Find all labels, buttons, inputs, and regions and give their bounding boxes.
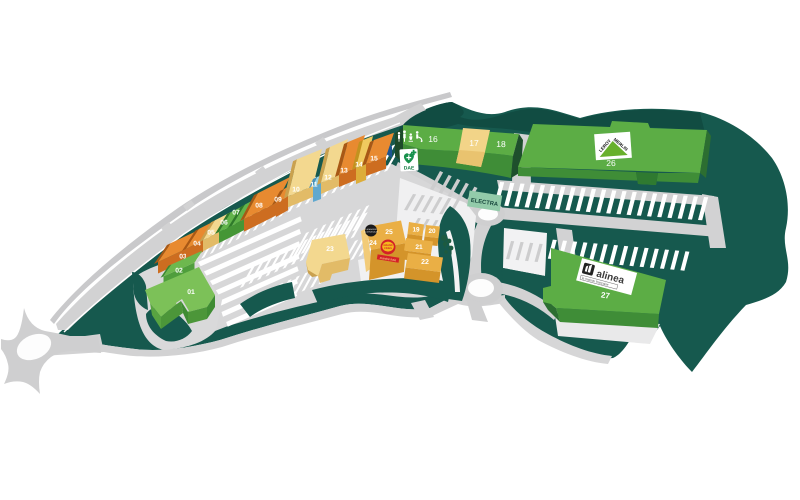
svg-text:du CHOCOLAT: du CHOCOLAT — [364, 231, 379, 234]
svg-text:18: 18 — [496, 139, 506, 149]
svg-text:23: 23 — [326, 246, 334, 253]
svg-text:07: 07 — [232, 209, 240, 216]
svg-text:05: 05 — [207, 229, 215, 236]
svg-text:20: 20 — [428, 228, 436, 235]
svg-text:01: 01 — [187, 289, 195, 296]
svg-text:11: 11 — [310, 181, 317, 188]
svg-text:02: 02 — [175, 267, 183, 274]
svg-text:17: 17 — [469, 138, 479, 148]
svg-text:26: 26 — [606, 158, 616, 168]
svg-text:21: 21 — [415, 244, 423, 251]
svg-text:06: 06 — [220, 219, 228, 226]
svg-text:12: 12 — [324, 174, 332, 181]
svg-text:22: 22 — [421, 259, 429, 266]
svg-text:13: 13 — [340, 167, 348, 174]
svg-text:27: 27 — [600, 290, 611, 300]
svg-text:09: 09 — [274, 196, 282, 203]
svg-text:DAE: DAE — [404, 166, 415, 172]
svg-text:FRAIS: FRAIS — [384, 247, 392, 250]
svg-text:25: 25 — [385, 229, 393, 236]
svg-text:15: 15 — [370, 155, 378, 162]
svg-text:08: 08 — [255, 202, 263, 209]
svg-text:24: 24 — [369, 240, 377, 247]
svg-text:10: 10 — [292, 186, 300, 193]
svg-text:19: 19 — [412, 227, 420, 234]
svg-text:16: 16 — [428, 134, 438, 144]
svg-text:14: 14 — [355, 161, 363, 168]
